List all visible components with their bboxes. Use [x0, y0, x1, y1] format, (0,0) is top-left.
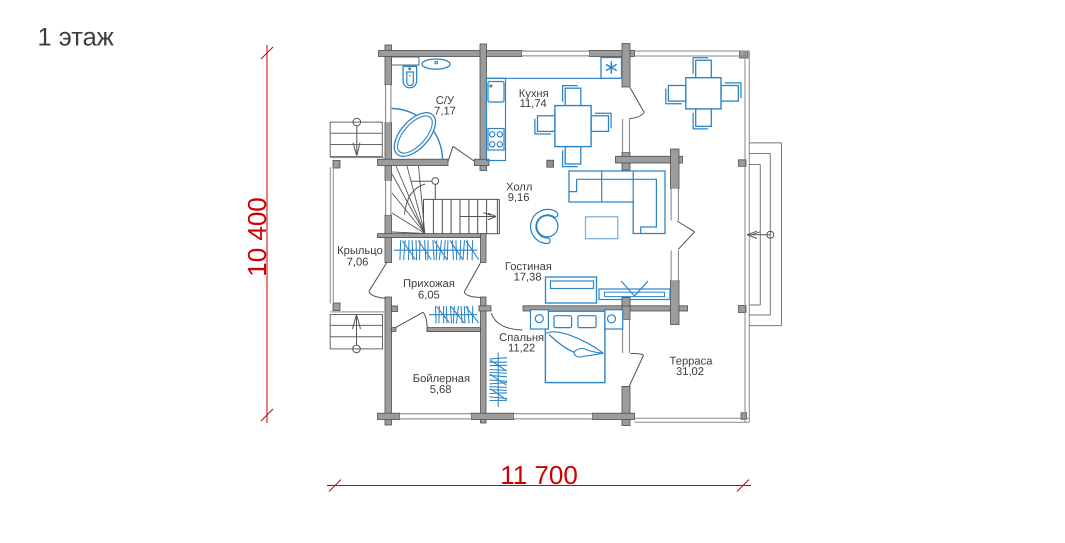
svg-text:5,68: 5,68 [430, 384, 452, 396]
svg-text:10 400: 10 400 [242, 197, 272, 277]
svg-text:7,17: 7,17 [434, 106, 456, 118]
svg-text:Прихожая: Прихожая [403, 278, 455, 290]
svg-text:Бойлерная: Бойлерная [413, 373, 470, 385]
svg-text:7,06: 7,06 [347, 257, 369, 269]
svg-text:17,38: 17,38 [514, 272, 542, 284]
svg-text:31,02: 31,02 [676, 366, 704, 378]
svg-text:Крыльцо: Крыльцо [337, 245, 383, 257]
svg-text:11,74: 11,74 [520, 98, 547, 110]
svg-text:11 700: 11 700 [500, 460, 578, 490]
svg-text:6,05: 6,05 [418, 290, 440, 302]
svg-text:9,16: 9,16 [508, 192, 530, 204]
svg-text:11,22: 11,22 [508, 342, 535, 354]
svg-text:1 этаж: 1 этаж [38, 24, 114, 52]
